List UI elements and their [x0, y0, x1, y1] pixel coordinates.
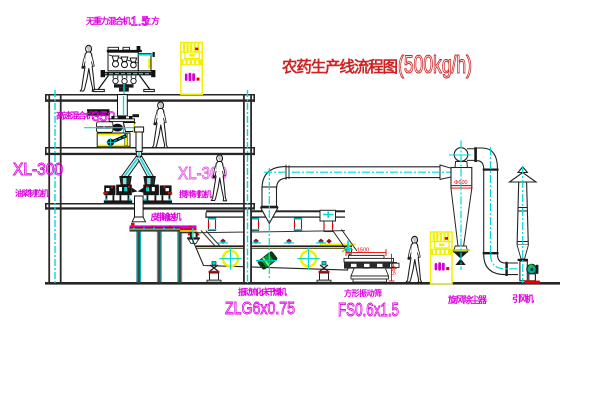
svg-text:1500: 1500 [357, 247, 369, 253]
svg-text:旋风除尘器: 旋风除尘器 [447, 294, 488, 305]
svg-text:立方: 立方 [143, 15, 161, 26]
svg-text:农药生产线流程图: 农药生产线流程图 [281, 57, 398, 76]
svg-text:搅拌制粒机: 搅拌制粒机 [179, 189, 213, 199]
svg-text:方形振动筛: 方形振动筛 [344, 288, 382, 298]
svg-text:XL-300: XL-300 [13, 159, 63, 179]
svg-text:540: 540 [392, 266, 398, 275]
svg-text:FS0.6x1.5: FS0.6x1.5 [338, 299, 399, 320]
svg-text:引风机: 引风机 [512, 293, 534, 304]
svg-text:ZLG6x0.75: ZLG6x0.75 [225, 298, 295, 318]
svg-text:振动流化床干燥机: 振动流化床干燥机 [238, 286, 287, 297]
svg-text:油桨制粒机: 油桨制粒机 [15, 188, 50, 198]
svg-text:高速混合机: 高速混合机 [56, 110, 94, 121]
svg-text:(500kg/h): (500kg/h) [398, 51, 472, 79]
svg-text:无重力混合机: 无重力混合机 [85, 15, 131, 26]
svg-text:皮带输送机: 皮带输送机 [150, 211, 182, 222]
